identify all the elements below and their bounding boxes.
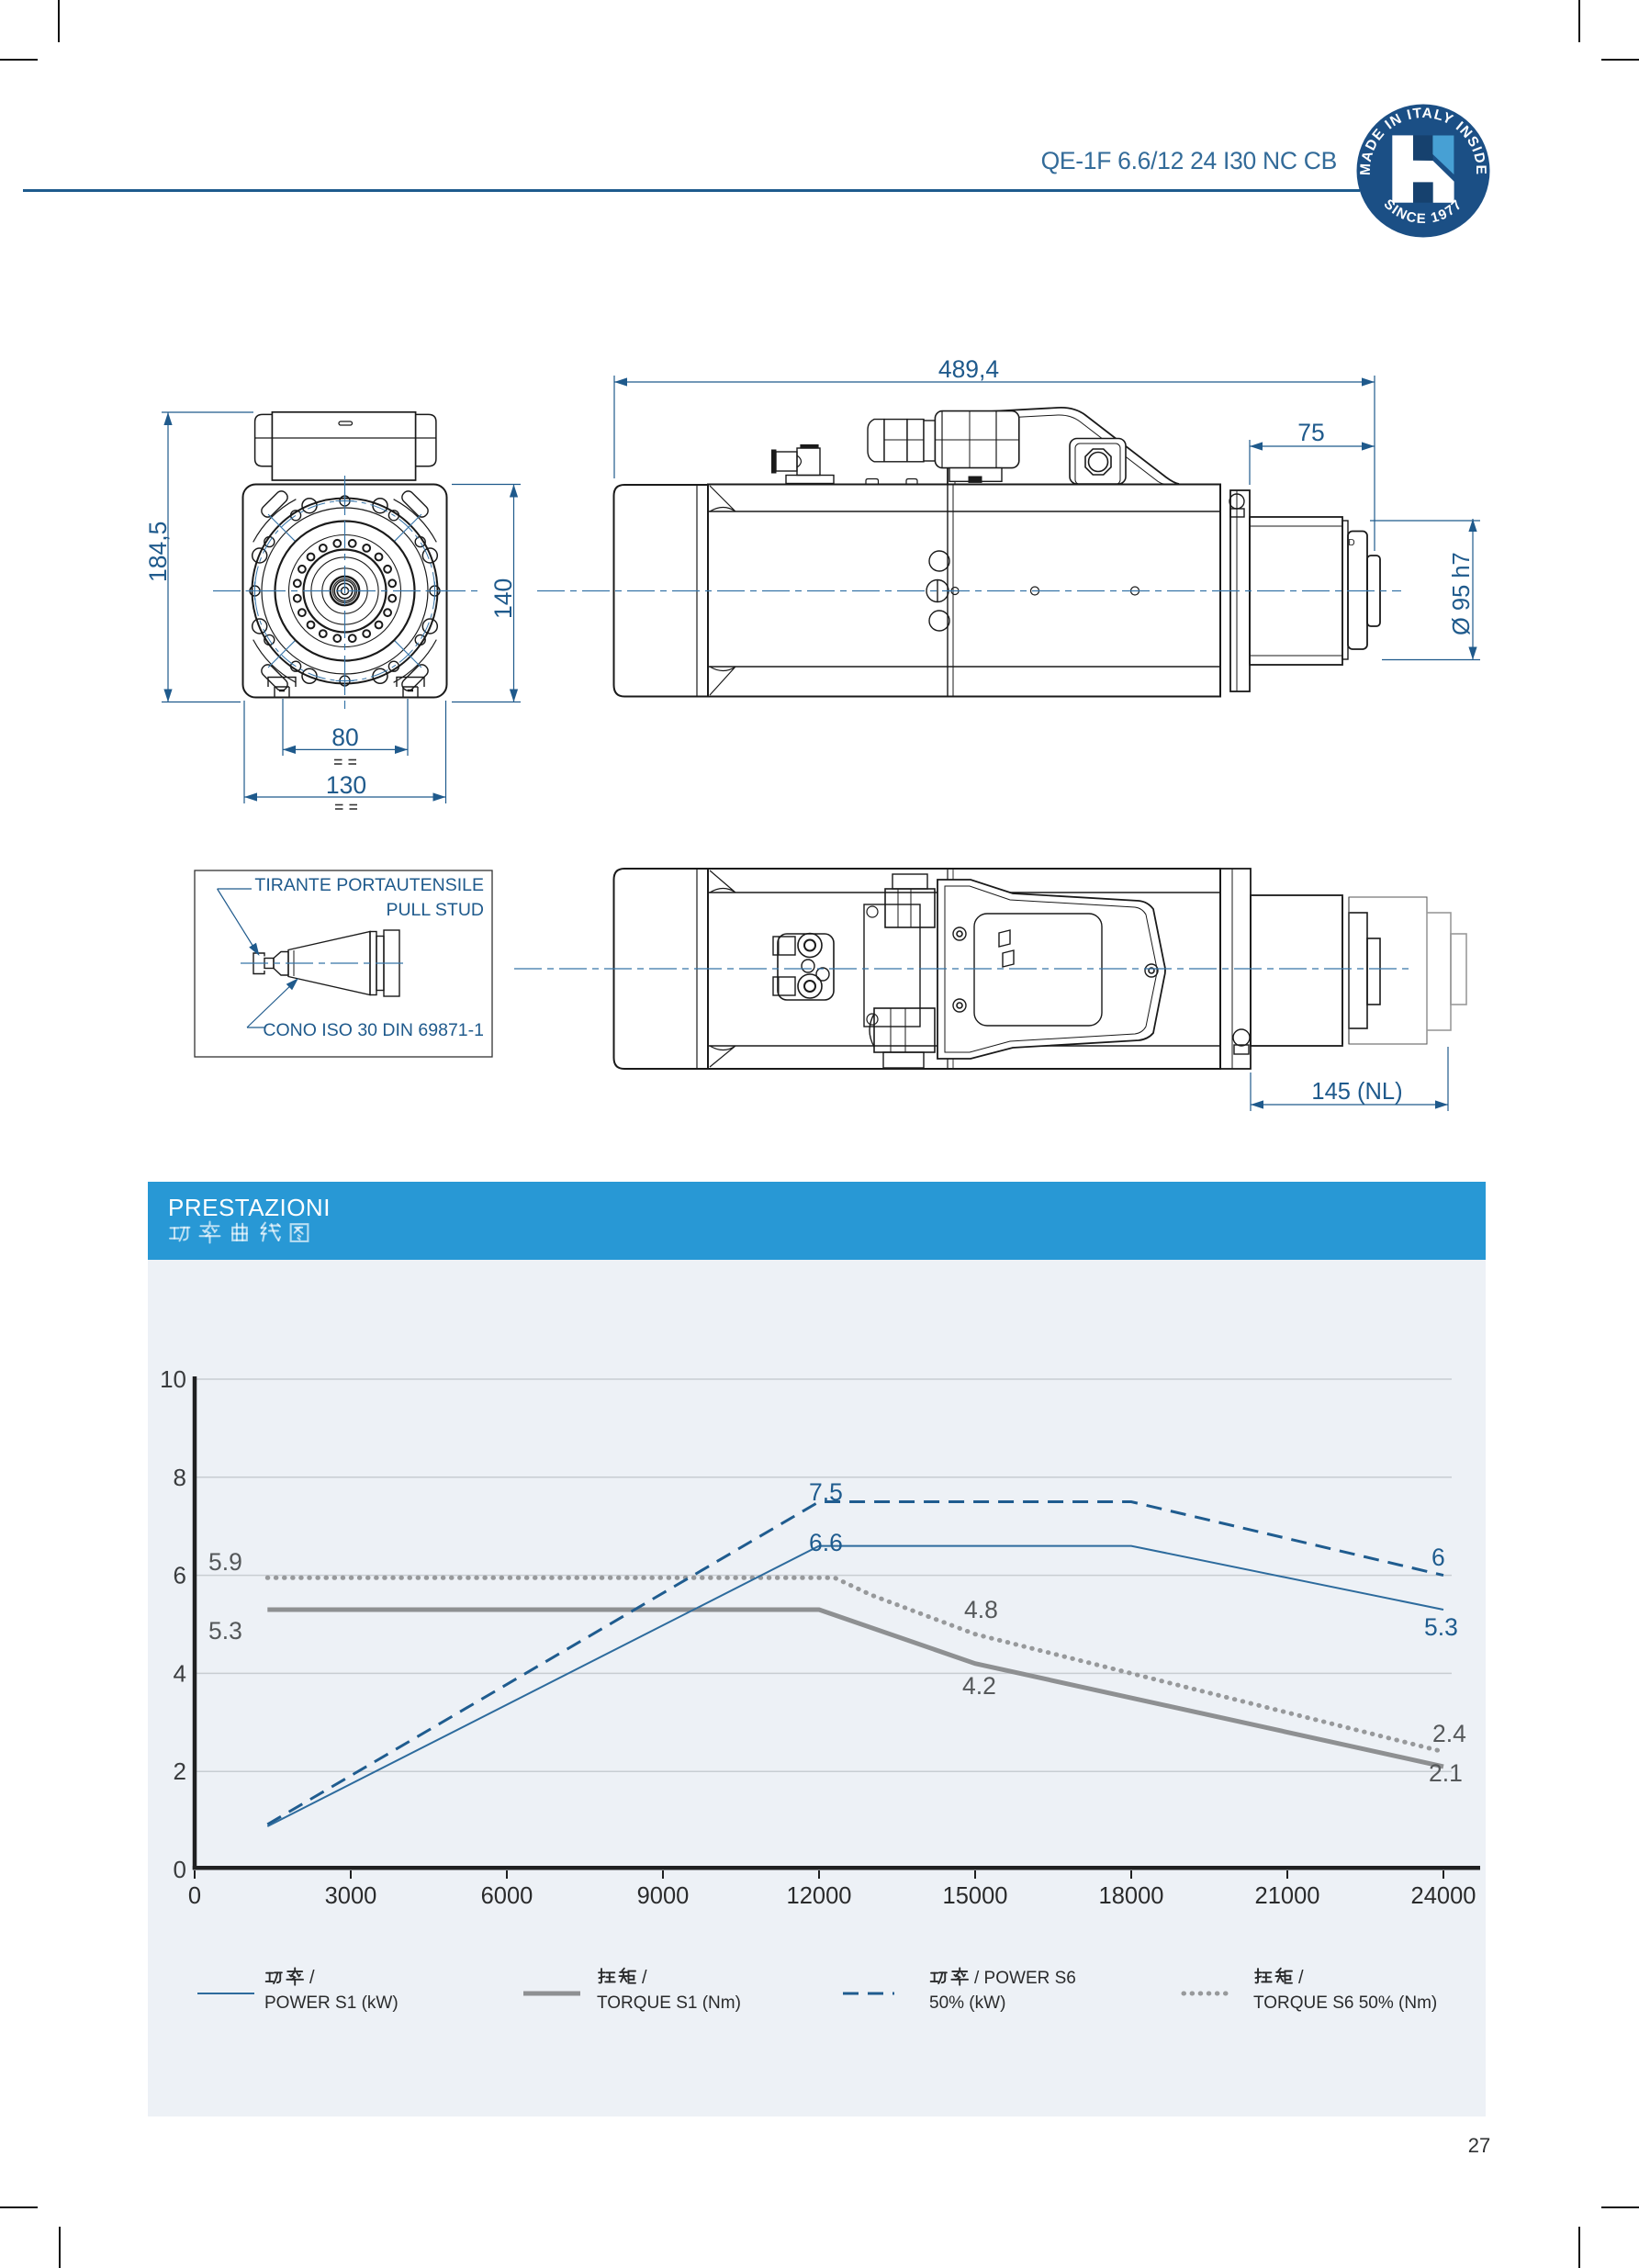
svg-text:6: 6 bbox=[174, 1562, 186, 1589]
svg-text:9000: 9000 bbox=[637, 1883, 690, 1909]
svg-text:2.4: 2.4 bbox=[1432, 1720, 1466, 1747]
svg-text:/ POWER S6: / POWER S6 bbox=[974, 1969, 1076, 1988]
svg-text:3000: 3000 bbox=[325, 1883, 377, 1909]
svg-text:5.9: 5.9 bbox=[208, 1548, 242, 1576]
svg-text:0: 0 bbox=[174, 1856, 186, 1883]
svg-text:15000: 15000 bbox=[943, 1883, 1008, 1909]
svg-text:4: 4 bbox=[174, 1659, 186, 1687]
svg-text:6000: 6000 bbox=[481, 1883, 533, 1909]
svg-text:10: 10 bbox=[160, 1365, 186, 1393]
svg-text:/: / bbox=[1298, 1968, 1304, 1988]
svg-text:18000: 18000 bbox=[1099, 1883, 1164, 1909]
svg-text:0: 0 bbox=[188, 1883, 201, 1909]
svg-text:POWER S1 (kW): POWER S1 (kW) bbox=[264, 1993, 399, 2013]
svg-text:2: 2 bbox=[174, 1757, 186, 1785]
svg-text:TORQUE S6 50% (Nm): TORQUE S6 50% (Nm) bbox=[1253, 1993, 1437, 2013]
svg-text:TORQUE S1 (Nm): TORQUE S1 (Nm) bbox=[597, 1993, 741, 2013]
svg-text:5.3: 5.3 bbox=[208, 1617, 242, 1645]
svg-text:8: 8 bbox=[174, 1464, 186, 1491]
svg-text:5.3: 5.3 bbox=[1424, 1613, 1458, 1641]
svg-text:4.8: 4.8 bbox=[964, 1596, 998, 1623]
svg-text:/: / bbox=[309, 1968, 315, 1988]
svg-text:7.5: 7.5 bbox=[809, 1478, 843, 1506]
svg-text:50% (kW): 50% (kW) bbox=[929, 1993, 1005, 2013]
svg-text:21000: 21000 bbox=[1255, 1883, 1320, 1909]
svg-text:6: 6 bbox=[1431, 1544, 1445, 1571]
svg-text:4.2: 4.2 bbox=[962, 1672, 996, 1700]
svg-text:6.6: 6.6 bbox=[809, 1529, 843, 1556]
svg-text:12000: 12000 bbox=[787, 1883, 852, 1909]
svg-text:/: / bbox=[642, 1968, 647, 1988]
svg-text:2.1: 2.1 bbox=[1429, 1759, 1463, 1787]
svg-text:24000: 24000 bbox=[1411, 1883, 1476, 1909]
